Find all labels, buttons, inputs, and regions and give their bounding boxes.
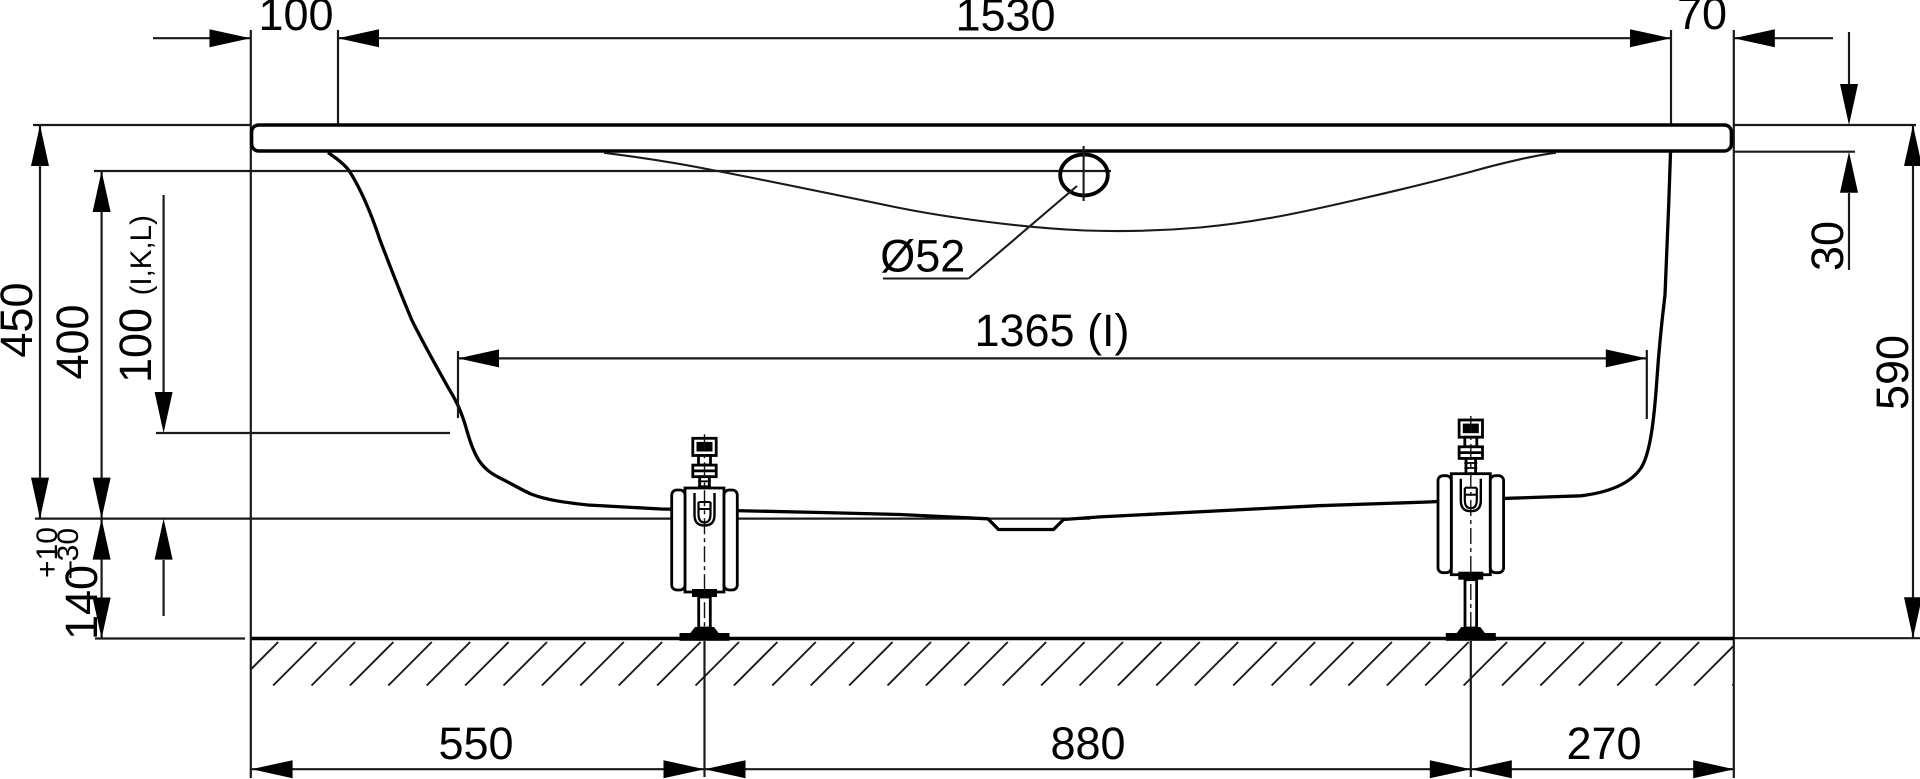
svg-text:400: 400 [47, 304, 98, 379]
svg-text:270: 270 [1566, 718, 1641, 769]
svg-text:880: 880 [1050, 718, 1125, 769]
svg-text:Ø52: Ø52 [880, 230, 965, 281]
svg-text:550: 550 [438, 718, 513, 769]
svg-text:590: 590 [1867, 335, 1918, 410]
svg-text:450: 450 [0, 283, 42, 358]
svg-text:100: 100 [258, 0, 333, 40]
svg-text:–30: –30 [52, 528, 85, 578]
svg-text:30: 30 [1802, 221, 1853, 271]
svg-text:70: 70 [1677, 0, 1727, 39]
svg-text:1365 (I): 1365 (I) [974, 305, 1129, 356]
svg-text:1530: 1530 [955, 0, 1055, 41]
